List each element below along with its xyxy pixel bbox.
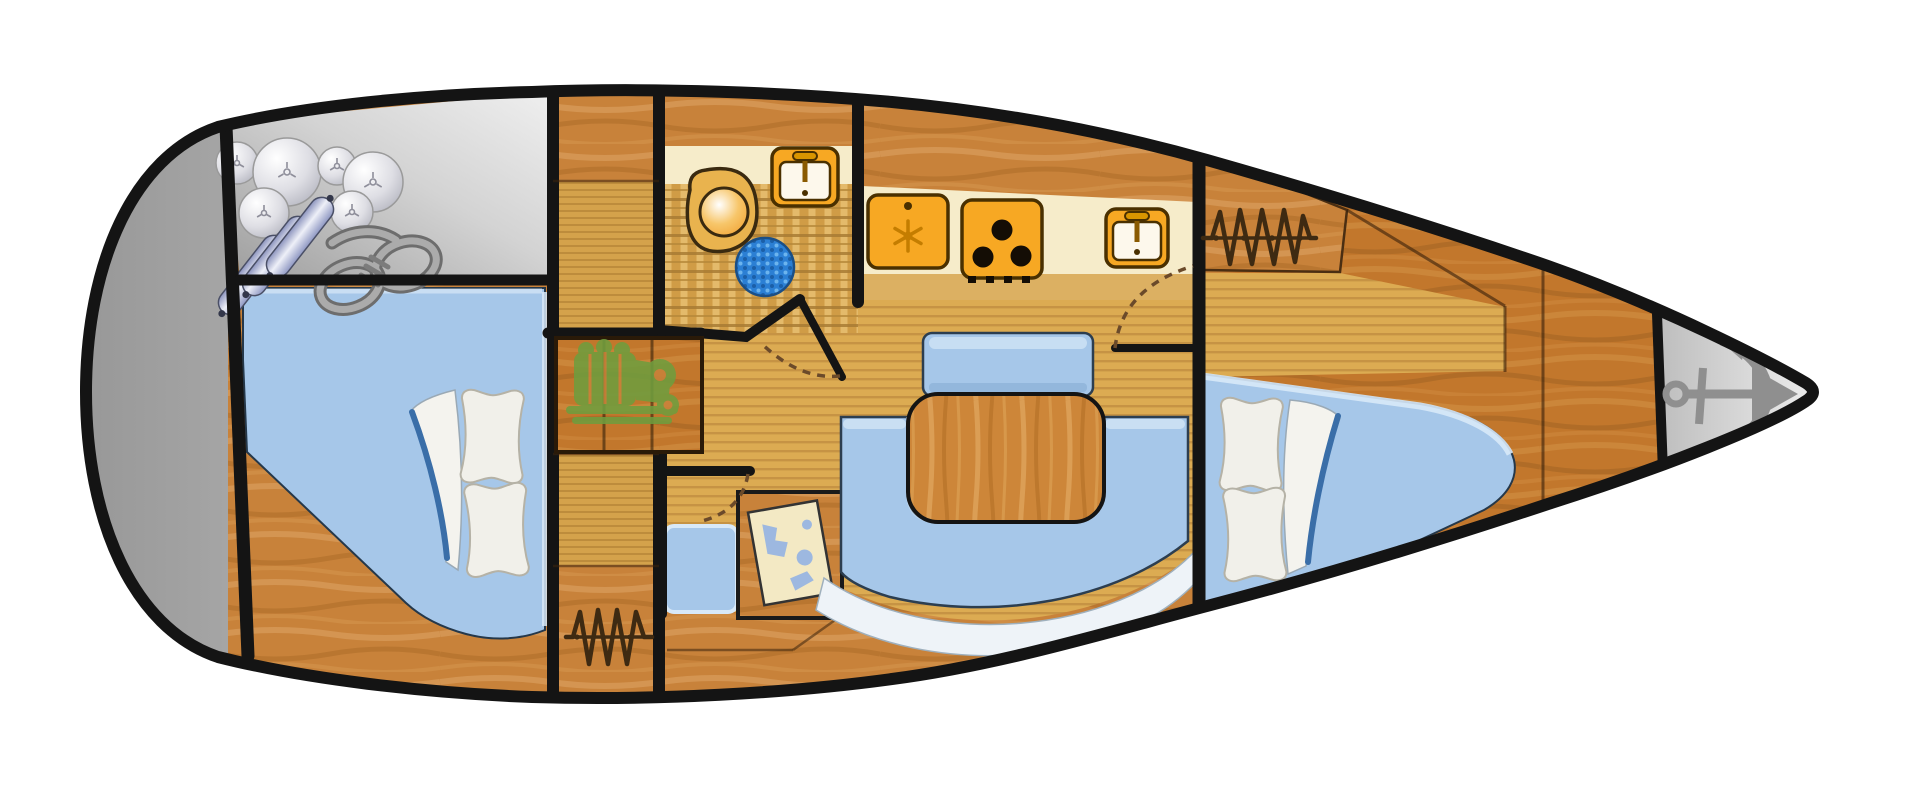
column-cell-wood-top xyxy=(553,88,659,182)
toilet-bowl xyxy=(700,188,748,236)
bench-highlight xyxy=(929,337,1087,349)
stove-icon xyxy=(962,200,1042,283)
settee-arm-highlight xyxy=(843,419,906,429)
hull-interior xyxy=(86,78,1818,714)
refrigerator-icon xyxy=(868,195,948,268)
settee-arm-highlight xyxy=(1105,419,1185,429)
pillow xyxy=(464,483,529,578)
column-cell-stripes-upper xyxy=(553,182,659,330)
anchor-locker-wall xyxy=(1657,314,1663,472)
pillow xyxy=(1223,488,1287,582)
washbasin-icon xyxy=(772,148,838,206)
companionway-steps xyxy=(556,338,702,452)
floor-plan-svg xyxy=(0,0,1920,792)
dinette-table xyxy=(908,394,1104,522)
nav-seat xyxy=(665,526,737,612)
galley-sink-icon xyxy=(1106,209,1168,267)
pillow xyxy=(460,390,524,484)
boat-floor-plan xyxy=(0,0,1920,792)
pillow xyxy=(1219,398,1283,492)
column-cell-stripes-lower xyxy=(553,455,659,565)
shower-mat-icon xyxy=(736,238,794,296)
forward-cabin xyxy=(1199,128,1667,710)
bench-shadow xyxy=(929,383,1087,392)
